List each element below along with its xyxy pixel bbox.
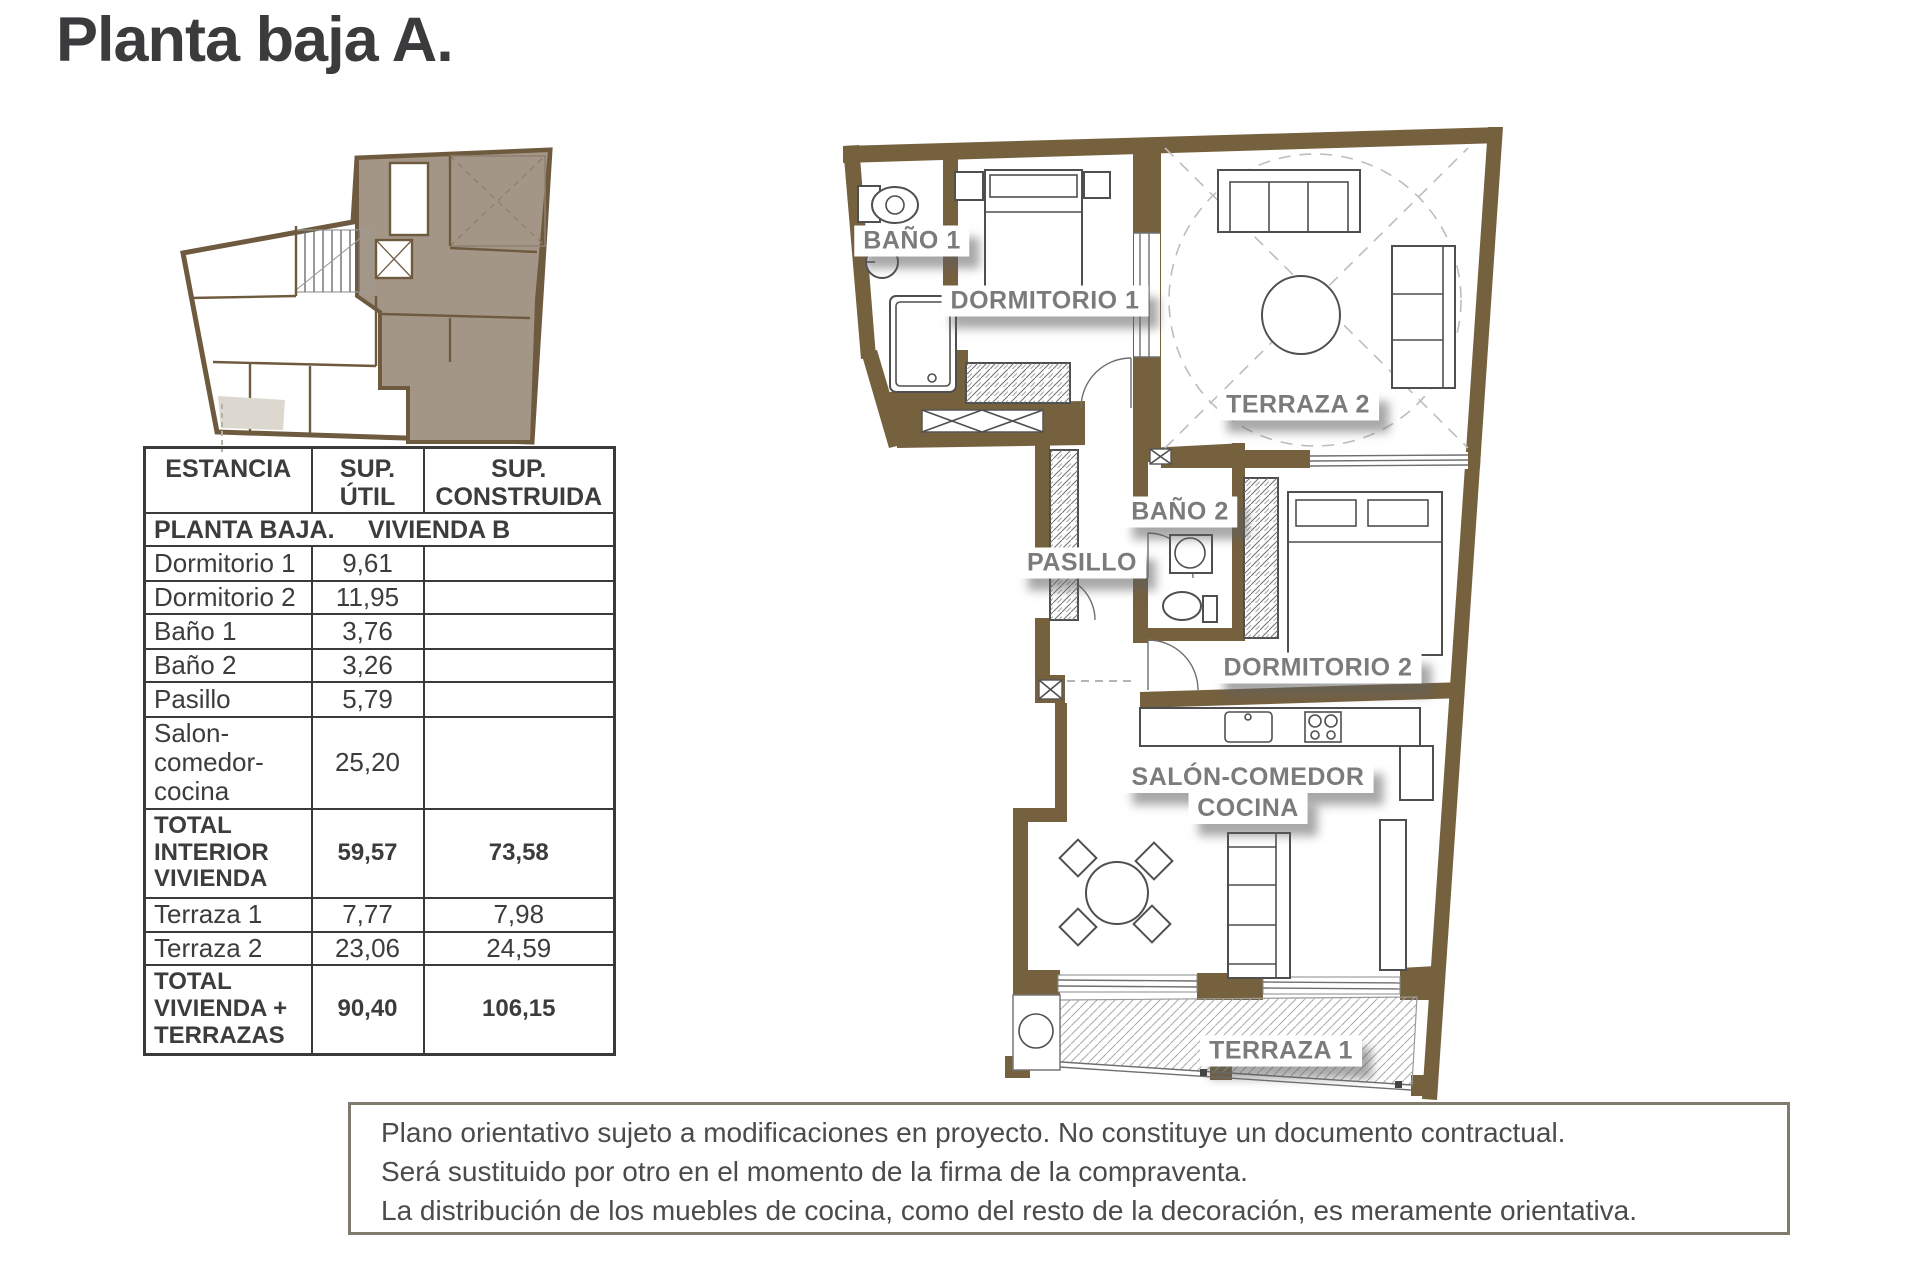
table-row: Pasillo 5,79 [145,682,615,717]
room-label-bano2: BAÑO 2 [1122,497,1237,528]
page-title: Planta baja A. [56,4,453,76]
key-plan-building [183,150,550,452]
disclaimer-line-2: Será sustituido por otro en el momento d… [381,1152,1787,1191]
table-header-row: ESTANCIA SUP. ÚTIL SUP. CONSTRUIDA [145,448,615,514]
section-planta: PLANTA BAJA. [154,516,335,544]
table-row: Terraza 1 7,77 7,98 [145,898,615,932]
table-section-row: PLANTA BAJA. VIVIENDA B [145,513,615,546]
table-row-total-vivienda: TOTAL VIVIENDA + TERRAZAS 90,40 106,15 [145,965,615,1055]
table-row: Salon-comedor-cocina 25,20 [145,717,615,808]
table-row: Dormitorio 2 11,95 [145,581,615,614]
room-label-terraza1: TERRAZA 1 [1200,1036,1362,1067]
room-label-pasillo: PASILLO [1018,548,1146,579]
room-label-terraza2: TERRAZA 2 [1217,390,1379,421]
table-row: Baño 1 3,76 [145,614,615,649]
area-table: ESTANCIA SUP. ÚTIL SUP. CONSTRUIDA PLANT… [143,446,616,1056]
key-plan [150,95,590,455]
floor-plan-drawing [820,110,1540,1120]
table-row: Baño 2 3,26 [145,649,615,682]
header-sup-util: SUP. ÚTIL [312,448,424,514]
disclaimer-line-1: Plano orientativo sujeto a modificacione… [381,1113,1787,1152]
room-label-bano1: BAÑO 1 [854,226,969,257]
room-label-salon-cocina: SALÓN-COMEDOR COCINA [1123,762,1374,824]
key-plan-elevator [376,240,412,278]
header-estancia: ESTANCIA [145,448,312,514]
page: { "title": "Planta baja A.", "table": { … [0,0,1920,1280]
table-row: Dormitorio 1 9,61 [145,546,615,581]
header-sup-construida: SUP. CONSTRUIDA [424,448,615,514]
section-vivienda: VIVIENDA B [368,516,510,544]
room-label-dormitorio1: DORMITORIO 1 [942,286,1149,317]
table-row-total-interior: TOTAL INTERIOR VIVIENDA 59,57 73,58 [145,809,615,898]
disclaimer-line-3: La distribución de los muebles de cocina… [381,1191,1787,1230]
room-label-dormitorio2: DORMITORIO 2 [1215,653,1422,684]
table-row: Terraza 2 23,06 24,59 [145,932,615,965]
disclaimer-box: Plano orientativo sujeto a modificacione… [348,1102,1790,1235]
